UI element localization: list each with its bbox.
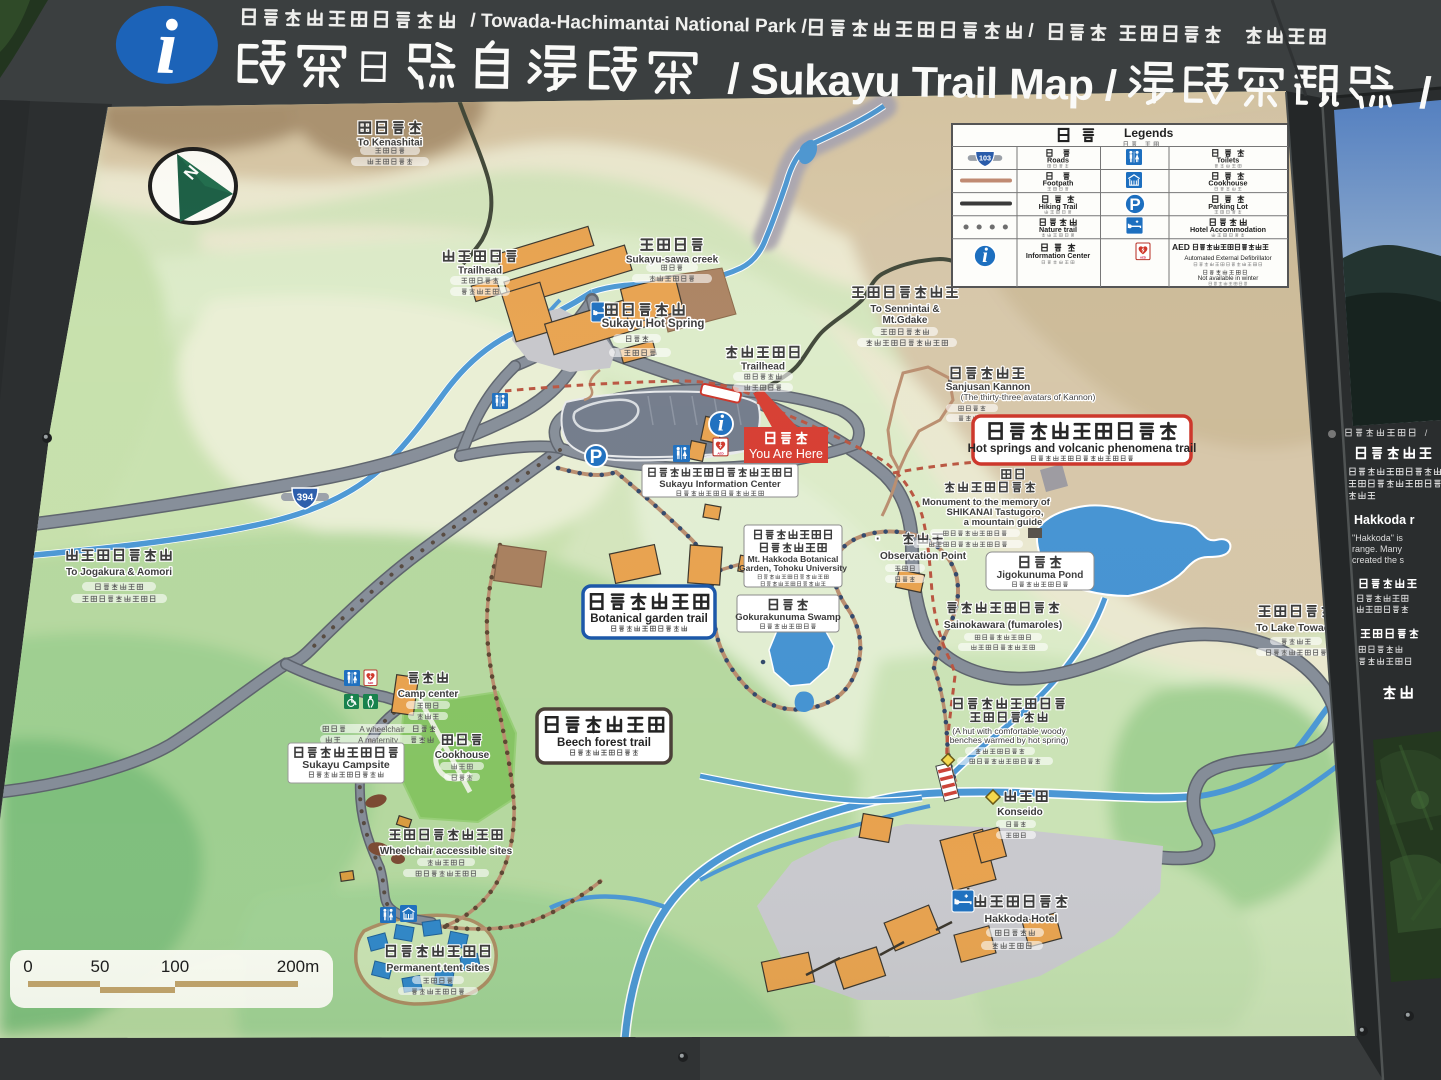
- svg-text:Nature trail: Nature trail: [1039, 225, 1077, 234]
- svg-text:"Hakkoda" is: "Hakkoda" is: [1352, 533, 1403, 543]
- svg-text:/: /: [1419, 69, 1432, 118]
- svg-text:Hiking Trail: Hiking Trail: [1039, 202, 1078, 211]
- svg-text:Hakkoda r: Hakkoda r: [1354, 513, 1415, 527]
- svg-text:AED: AED: [1140, 255, 1146, 259]
- svg-text:Roads: Roads: [1047, 156, 1069, 165]
- svg-text:Hotel Accommodation: Hotel Accommodation: [1190, 225, 1266, 234]
- svg-text:created the s: created the s: [1352, 555, 1405, 565]
- svg-text:Legends: Legends: [1124, 126, 1174, 140]
- svg-text:Footpath: Footpath: [1043, 179, 1074, 188]
- svg-text:i: i: [982, 243, 988, 267]
- svg-text:Parking Lot: Parking Lot: [1208, 202, 1248, 211]
- svg-text:Toilets: Toilets: [1217, 156, 1240, 165]
- svg-text:AED: AED: [1172, 242, 1190, 252]
- svg-text:Automated External Defibrillat: Automated External Defibrillator: [1184, 255, 1271, 262]
- svg-text:P: P: [1129, 195, 1140, 214]
- svg-text:103: 103: [979, 154, 991, 163]
- svg-text:range. Many: range. Many: [1352, 544, 1403, 554]
- svg-text:Cookhouse: Cookhouse: [1208, 179, 1247, 188]
- svg-text:/ Sukayu Trail Map /: / Sukayu Trail Map /: [727, 55, 1117, 110]
- svg-text:i: i: [155, 3, 179, 90]
- svg-text:Information Center: Information Center: [1026, 251, 1090, 260]
- svg-text:Not available in winter: Not available in winter: [1198, 275, 1259, 282]
